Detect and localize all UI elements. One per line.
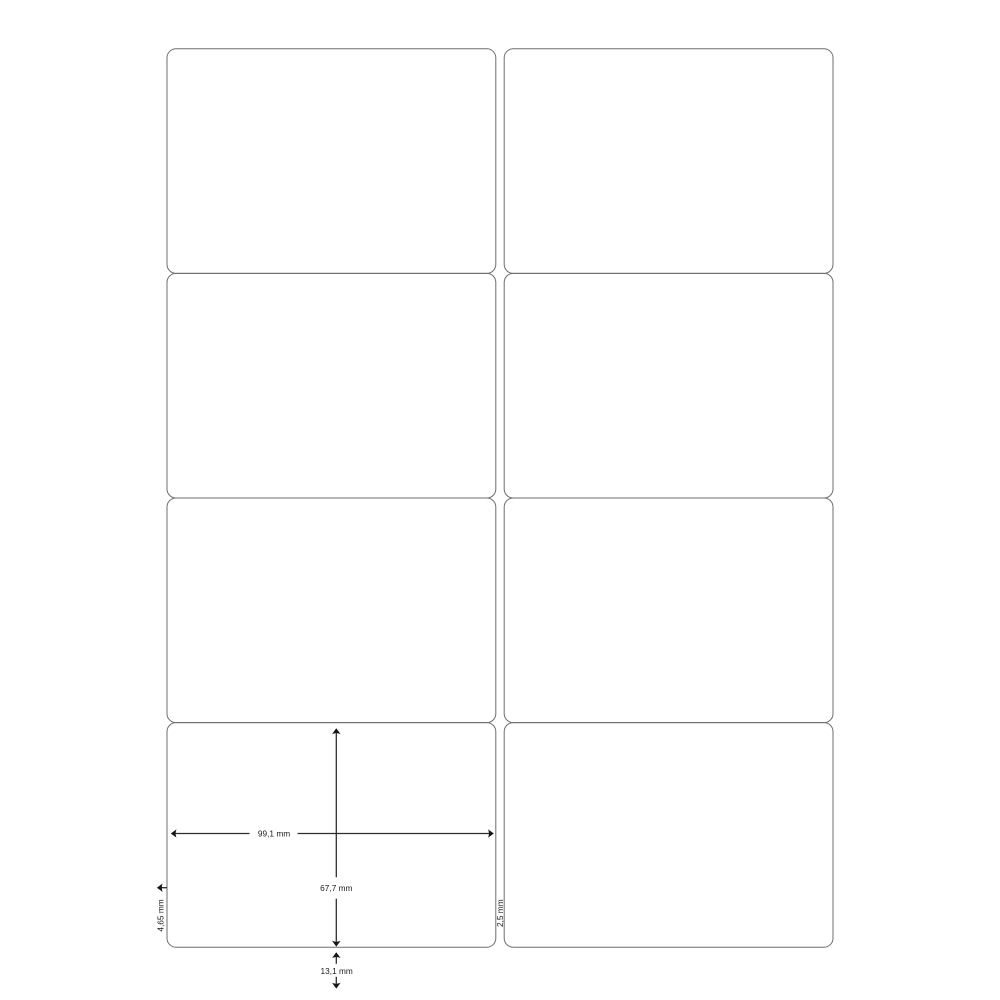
svg-text:99,1 mm: 99,1 mm [258,829,290,839]
svg-text:13,1 mm: 13,1 mm [321,966,353,976]
svg-text:2,5 mm: 2,5 mm [495,899,505,927]
svg-text:4,65 mm: 4,65 mm [155,899,165,931]
svg-text:67,7 mm: 67,7 mm [320,883,352,893]
